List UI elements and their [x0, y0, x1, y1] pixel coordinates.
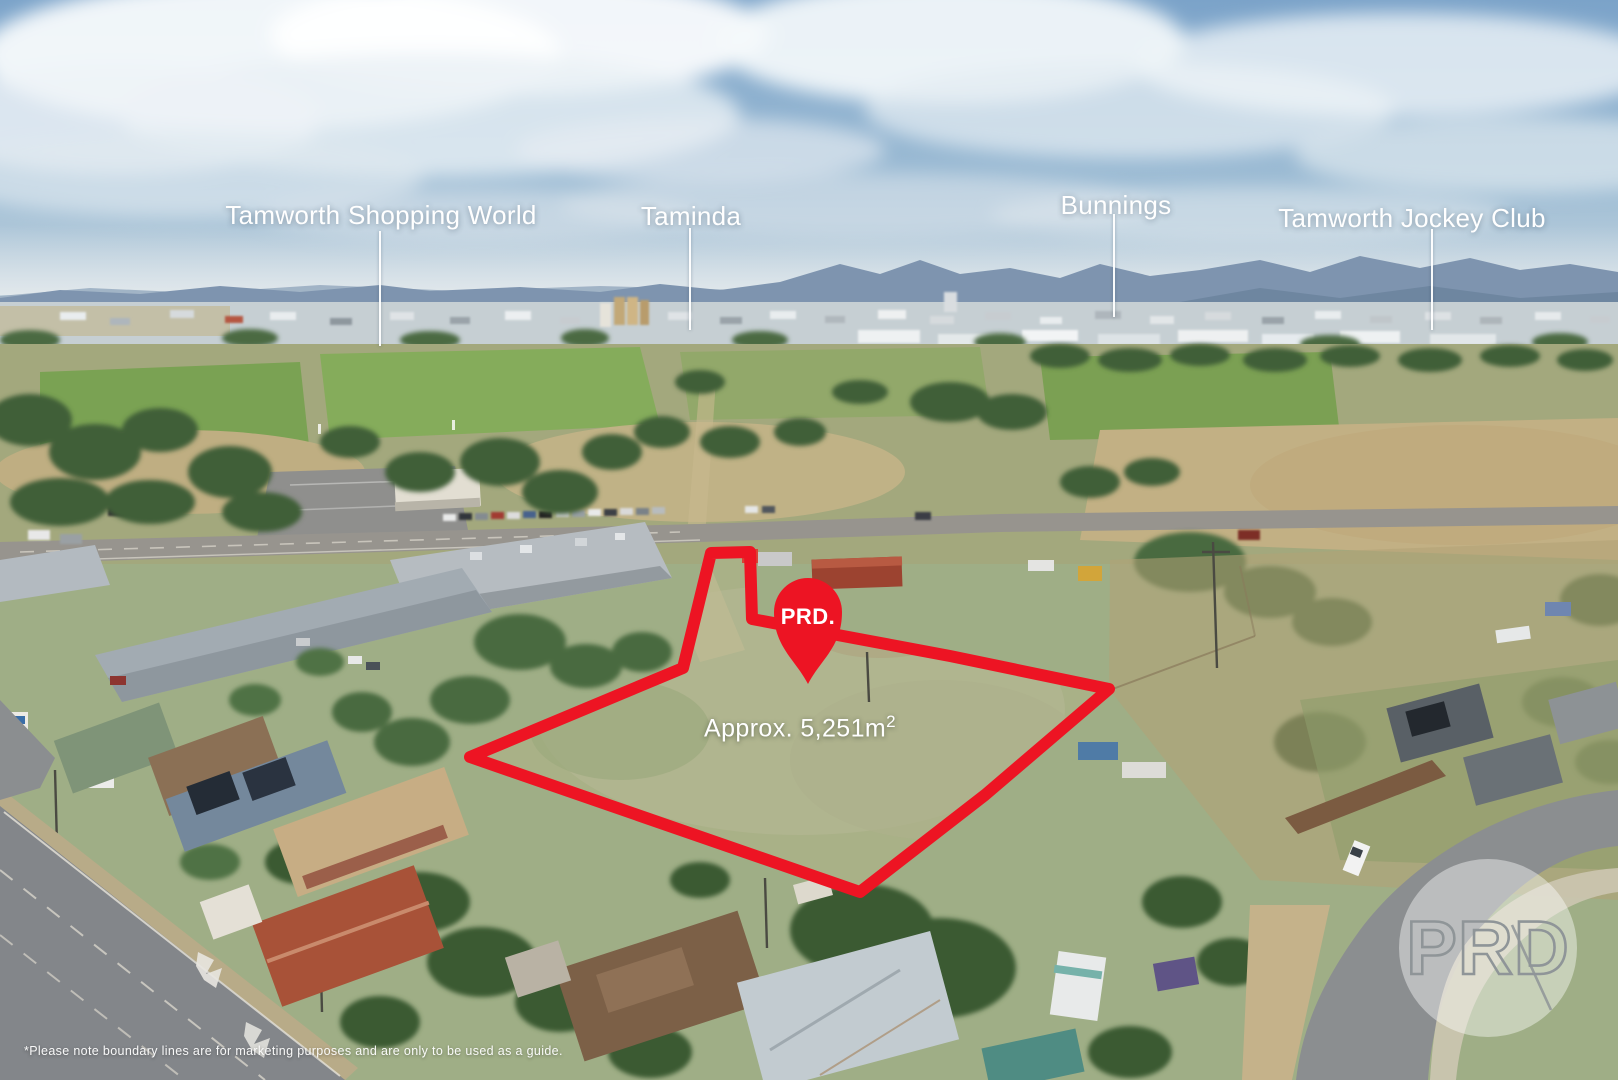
- area-label-text: Approx. 5,251m: [704, 714, 886, 742]
- watermark-brand-text: PRD: [1406, 906, 1569, 991]
- landmark-pointer-line: [1113, 214, 1115, 317]
- landmark-label-tamworth-jockey-club: Tamworth Jockey Club: [1278, 203, 1546, 234]
- pin-brand-text: PRD.: [781, 604, 836, 629]
- landmark-label-taminda: Taminda: [641, 201, 741, 232]
- landmark-label-bunnings: Bunnings: [1061, 190, 1172, 221]
- aerial-listing-photo: PRD. PRD Tamworth Shopping World Taminda…: [0, 0, 1618, 1080]
- aerial-photo-background: PRD. PRD: [0, 0, 1618, 1080]
- brand-watermark: PRD: [1399, 859, 1577, 1037]
- landmark-pointer-line: [379, 231, 381, 346]
- boundary-disclaimer: *Please note boundary lines are for mark…: [24, 1044, 563, 1058]
- landmark-pointer-line: [689, 228, 691, 330]
- landmark-pointer-line: [1431, 229, 1433, 330]
- landmark-label-tamworth-shopping-world: Tamworth Shopping World: [225, 200, 536, 231]
- area-label: Approx. 5,251m2: [704, 712, 896, 743]
- area-label-exponent: 2: [886, 712, 896, 731]
